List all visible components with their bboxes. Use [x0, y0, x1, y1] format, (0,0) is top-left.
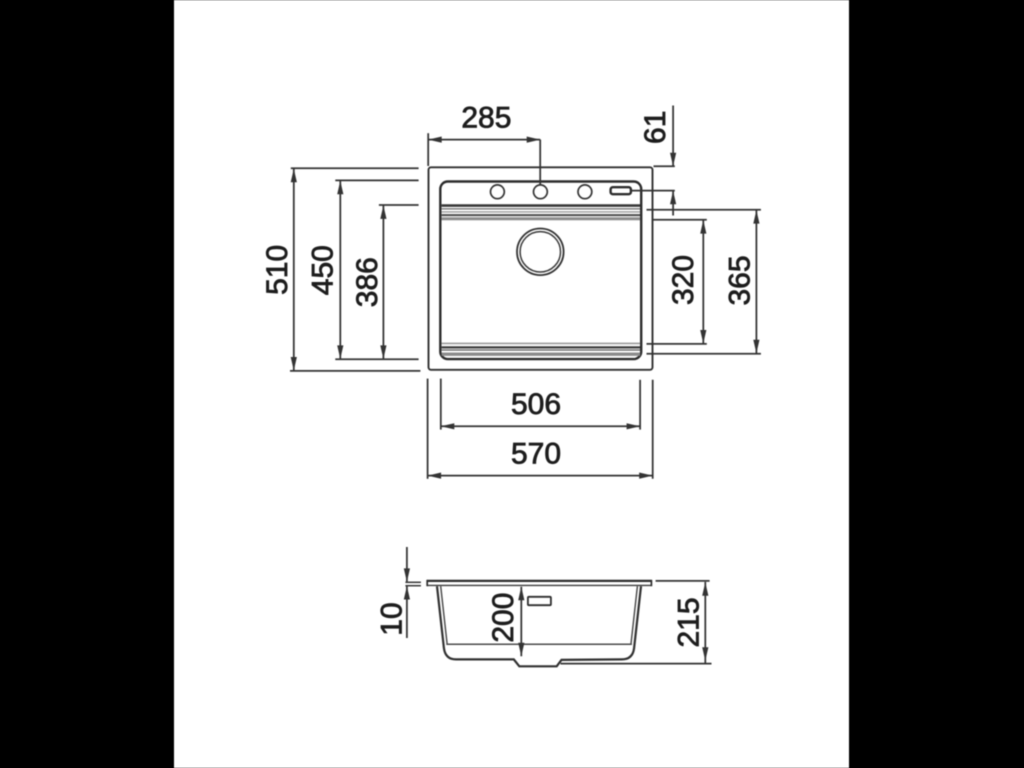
svg-text:10: 10	[376, 602, 409, 635]
svg-text:285: 285	[461, 102, 511, 135]
svg-text:570: 570	[511, 438, 561, 471]
svg-text:365: 365	[724, 255, 757, 305]
svg-text:450: 450	[306, 245, 339, 295]
svg-text:200: 200	[487, 593, 520, 643]
svg-text:386: 386	[351, 257, 384, 307]
svg-text:510: 510	[261, 245, 294, 295]
svg-text:215: 215	[672, 597, 705, 647]
svg-text:61: 61	[639, 111, 672, 144]
svg-text:506: 506	[511, 388, 561, 421]
svg-text:320: 320	[667, 255, 700, 305]
